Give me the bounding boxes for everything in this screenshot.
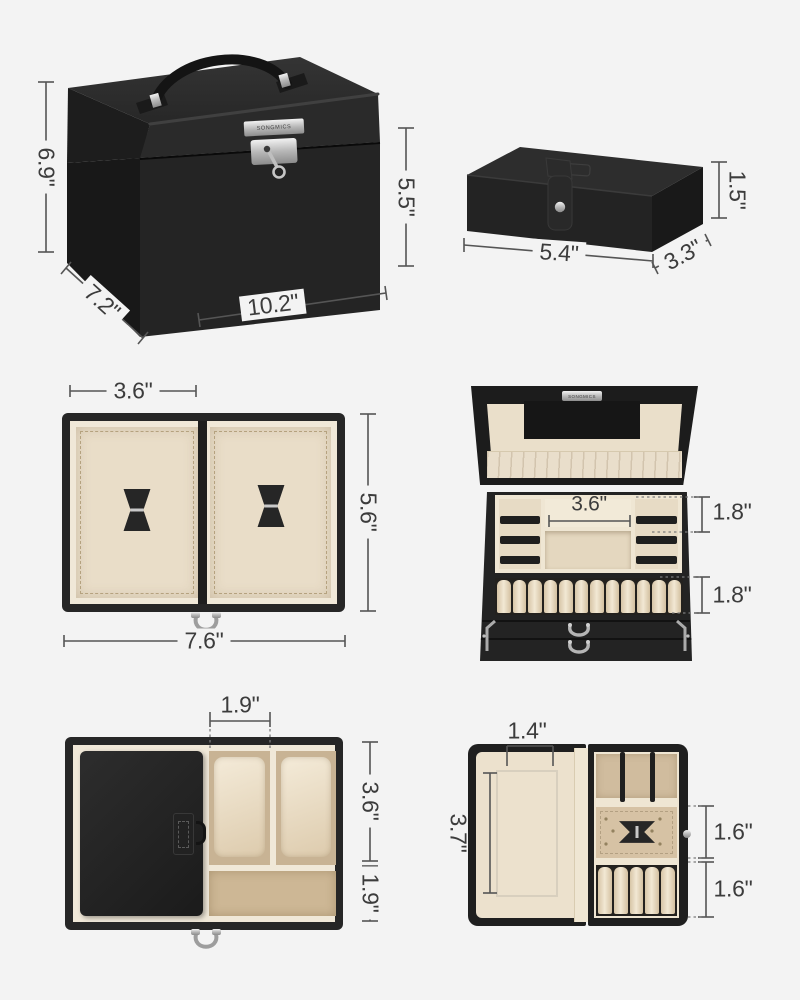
travel-case-body: [588, 744, 688, 926]
dim-slot-width: 1.9": [218, 693, 263, 718]
lid-mirror-frame: [524, 401, 640, 439]
key-ring-icon: [274, 167, 285, 178]
ring-rolls-row: [596, 865, 677, 916]
dim-lower-depth: 1.9": [358, 867, 383, 920]
drawer-watch-view: [65, 737, 343, 930]
dim-compartment-width: 3.6": [568, 493, 609, 516]
product-dimension-image: SONGMICS: [0, 0, 800, 1000]
embossed-logo: [558, 163, 591, 176]
divider-bar: [620, 752, 625, 802]
divider-bar: [500, 536, 540, 544]
mirror: [496, 770, 558, 897]
small-case-illustration: [467, 147, 703, 252]
dim-section-width: 3.6": [107, 379, 160, 404]
divider-bar: [500, 516, 540, 524]
case-strap: [546, 158, 572, 230]
drawer-handle: [191, 929, 221, 947]
top-compartments: [596, 754, 677, 798]
travel-case-lid: [468, 744, 586, 926]
earring-panel: [596, 807, 677, 858]
divider-bar: [636, 516, 677, 524]
drawer-seam: [482, 620, 690, 622]
dim-depth: 7.2": [74, 275, 130, 329]
tray-right-compartments: [635, 499, 678, 569]
brand-text: SONGMICS: [568, 394, 596, 399]
keyhole: [264, 146, 270, 152]
dim-mirror-height: 3.7": [446, 811, 471, 856]
dim-drawer-depth: 5.6": [356, 486, 381, 539]
key-stem: [269, 152, 277, 167]
lock-latch: [250, 138, 297, 178]
watch-compartment: [276, 751, 336, 865]
ruffle-pocket: [487, 451, 682, 478]
divider-bar: [636, 536, 677, 544]
case-interior: [594, 752, 679, 918]
velvet-panel-right: [210, 427, 331, 598]
snap-button: [555, 202, 565, 212]
dim-drawer-width: 7.6": [178, 629, 231, 654]
open-box-body: [480, 492, 692, 661]
watch-pillow: [214, 757, 265, 857]
dim-ring-row-depth: 1.8": [710, 583, 755, 608]
dim-front-height: 5.5": [394, 171, 419, 224]
dim-case-width: 5.4": [532, 239, 587, 268]
velvet-panel-left: [76, 427, 198, 598]
box-handle: [136, 59, 308, 114]
folder-strap: [173, 813, 194, 855]
mirror: [528, 405, 636, 435]
dim-case-depth: 3.3": [654, 232, 712, 279]
drawer-seam: [480, 638, 692, 640]
divider-bar: [636, 556, 677, 564]
center-divider: [198, 421, 207, 604]
strap-stitch: [178, 821, 189, 848]
drawer-two-sections-view: [62, 413, 345, 612]
divider-bar: [500, 556, 540, 564]
brand-plate: SONGMICS: [244, 118, 305, 136]
dim-left-height: 6.9": [34, 141, 59, 194]
dim-tray-depth: 1.8": [710, 500, 755, 525]
dim-width: 10.2": [239, 289, 307, 322]
open-compartment: [209, 871, 336, 916]
dim-case-height: 1.5": [725, 168, 750, 213]
dim-mirror-width: 1.4": [505, 719, 550, 744]
dim-middle-depth: 1.6": [711, 820, 756, 845]
folder-loop: [196, 821, 206, 845]
brand-plate: SONGMICS: [562, 391, 602, 401]
tray-left-compartments: [499, 499, 541, 569]
divider-bar: [650, 752, 655, 802]
ring-rolls-row: [495, 578, 683, 615]
watch-pillow: [281, 757, 331, 857]
dim-upper-depth: 3.6": [358, 775, 383, 828]
dim-case-lower-depth: 1.6": [711, 877, 756, 902]
watch-compartment: [209, 751, 270, 865]
brand-text: SONGMICS: [256, 124, 291, 132]
tray-center-bottom-compartment: [545, 531, 631, 569]
jewelry-folder: [80, 751, 203, 916]
